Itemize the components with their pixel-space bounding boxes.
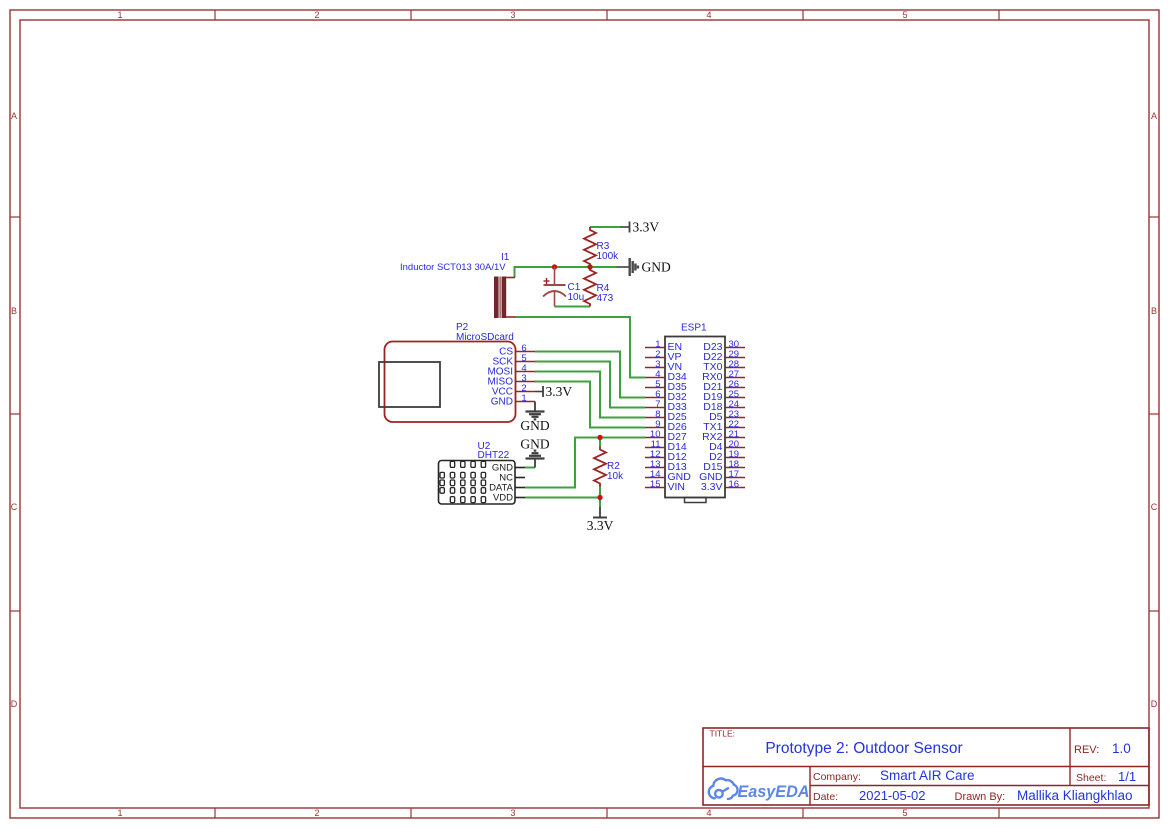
svg-text:3.3V: 3.3V — [587, 518, 614, 533]
svg-text:B: B — [1151, 306, 1157, 316]
svg-text:1.0: 1.0 — [1112, 741, 1131, 756]
svg-text:Mallika Kliangkhlao: Mallika Kliangkhlao — [1017, 788, 1133, 803]
svg-text:10k: 10k — [607, 471, 624, 482]
svg-text:B: B — [11, 306, 17, 316]
svg-text:4: 4 — [706, 10, 711, 20]
svg-text:D: D — [11, 699, 18, 709]
svg-text:VIN: VIN — [668, 481, 686, 493]
svg-text:GND: GND — [520, 437, 549, 452]
svg-text:MicroSDcard: MicroSDcard — [456, 332, 514, 343]
svg-text:5: 5 — [902, 10, 907, 20]
svg-text:D: D — [1151, 699, 1158, 709]
svg-text:3.3V: 3.3V — [701, 481, 723, 493]
svg-text:C: C — [1151, 502, 1158, 512]
svg-text:473: 473 — [597, 293, 614, 304]
svg-text:GND: GND — [491, 397, 513, 408]
svg-text:3: 3 — [510, 808, 515, 818]
svg-text:Smart AIR Care: Smart AIR Care — [880, 768, 975, 783]
svg-text:Inductor SCT013 30A/1V: Inductor SCT013 30A/1V — [400, 262, 506, 273]
svg-text:A: A — [11, 111, 17, 121]
svg-text:1/1: 1/1 — [1118, 769, 1136, 784]
svg-text:16: 16 — [729, 479, 740, 490]
svg-text:1: 1 — [117, 10, 122, 20]
svg-text:2: 2 — [314, 10, 319, 20]
svg-text:Sheet:: Sheet: — [1076, 772, 1106, 784]
svg-text:4: 4 — [706, 808, 711, 818]
svg-text:3.3V: 3.3V — [633, 220, 660, 235]
svg-text:15: 15 — [650, 479, 661, 490]
svg-text:C: C — [11, 502, 18, 512]
svg-text:10u: 10u — [568, 292, 585, 303]
svg-text:1: 1 — [521, 393, 526, 404]
svg-text:100k: 100k — [597, 251, 620, 262]
svg-text:TITLE:: TITLE: — [710, 729, 736, 739]
svg-text:Date:: Date: — [813, 791, 838, 803]
svg-text:Company:: Company: — [813, 771, 861, 783]
svg-text:2: 2 — [314, 808, 319, 818]
svg-text:3.3V: 3.3V — [546, 384, 573, 399]
svg-text:3: 3 — [510, 10, 515, 20]
svg-text:REV:: REV: — [1074, 744, 1099, 756]
svg-text:5: 5 — [902, 808, 907, 818]
svg-text:GND: GND — [520, 418, 549, 433]
svg-text:A: A — [1151, 111, 1157, 121]
svg-text:VDD: VDD — [493, 493, 513, 504]
svg-text:Prototype 2: Outdoor Sensor: Prototype 2: Outdoor Sensor — [765, 740, 962, 757]
svg-text:1: 1 — [117, 808, 122, 818]
svg-text:Drawn By:: Drawn By: — [955, 791, 1006, 803]
svg-text:GND: GND — [642, 260, 671, 275]
svg-text:DHT22: DHT22 — [478, 450, 510, 461]
svg-text:EasyEDA: EasyEDA — [738, 783, 810, 801]
svg-text:ESP1: ESP1 — [681, 323, 707, 334]
svg-text:2021-05-02: 2021-05-02 — [859, 788, 926, 803]
